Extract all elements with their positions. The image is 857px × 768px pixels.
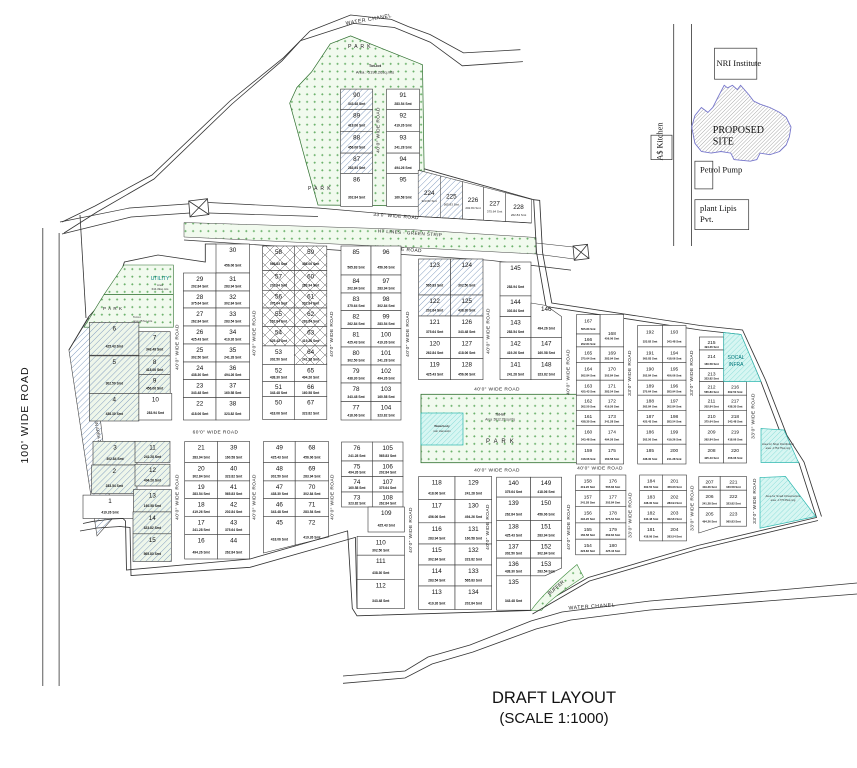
svg-text:438.30 Smt: 438.30 Smt [106,412,124,416]
svg-text:456.06 Smt: 456.06 Smt [428,515,446,519]
svg-text:112: 112 [376,582,387,589]
svg-text:PROPOSED: PROPOSED [713,125,764,136]
svg-text:283.94 Smt: 283.94 Smt [377,287,395,291]
svg-text:60'0" WIDE ROAD: 60'0" WIDE ROAD [193,430,239,436]
svg-text:83: 83 [352,296,360,303]
svg-text:4: 4 [112,396,116,403]
svg-text:181: 181 [647,527,655,533]
svg-text:222: 222 [729,494,737,500]
svg-text:27: 27 [196,311,204,318]
svg-text:121: 121 [429,319,440,326]
svg-text:52: 52 [275,367,283,374]
svg-text:200: 200 [670,448,678,454]
svg-text:40'0" WIDE ROAD: 40'0" WIDE ROAD [474,387,520,393]
svg-text:132: 132 [468,547,479,554]
svg-text:241.28 Smt: 241.28 Smt [302,358,320,362]
svg-text:419.26 Smt: 419.26 Smt [224,338,242,342]
svg-text:438.30 Smt: 438.30 Smt [728,405,743,409]
svg-text:375.64 Smt: 375.64 Smt [581,357,596,361]
svg-text:29: 29 [196,276,204,283]
svg-text:425.43 Smt: 425.43 Smt [378,524,396,528]
svg-text:15: 15 [149,537,157,544]
svg-text:302.84 Smt: 302.84 Smt [377,304,395,308]
svg-text:343.48 Smt: 343.48 Smt [146,348,164,352]
svg-text:418.06 Smt: 418.06 Smt [581,457,596,461]
svg-text:160.58 Smt: 160.58 Smt [580,533,595,537]
svg-text:22: 22 [196,401,204,408]
svg-text:302.84 Smt: 302.84 Smt [224,302,242,306]
svg-text:565.83 Smt: 565.83 Smt [426,283,444,287]
svg-text:302.50 Smt: 302.50 Smt [347,359,365,363]
svg-text:456.06 Smt: 456.06 Smt [537,512,555,516]
svg-text:375.64 Smt: 375.64 Smt [704,420,719,424]
svg-text:283.54 Smt: 283.54 Smt [428,579,446,583]
svg-text:33'0" WIDE ROAD: 33'0" WIDE ROAD [750,393,756,439]
svg-text:97: 97 [382,278,390,285]
svg-text:175: 175 [608,448,616,454]
svg-text:59: 59 [307,249,315,256]
svg-text:262.84 Smt: 262.84 Smt [511,213,527,217]
svg-text:302.84 Smt: 302.84 Smt [537,552,555,556]
svg-text:33'0" WIDE ROAD: 33'0" WIDE ROAD [627,350,633,396]
svg-text:P A R K: P A R K [103,306,123,311]
svg-text:182: 182 [647,511,655,517]
svg-text:99: 99 [382,314,390,321]
svg-text:134: 134 [468,589,479,596]
svg-text:2: 2 [113,468,117,475]
svg-text:202.84 Smt: 202.84 Smt [225,510,243,514]
svg-text:86: 86 [353,176,361,183]
svg-text:Waterbody: Waterbody [434,424,450,428]
svg-text:438.30 Smt: 438.30 Smt [347,377,365,381]
svg-text:131: 131 [468,526,479,533]
svg-text:302.84 Smt: 302.84 Smt [302,302,320,306]
svg-text:120: 120 [429,340,440,347]
svg-text:262.84 Smt: 262.84 Smt [505,512,523,516]
svg-text:174: 174 [608,429,616,435]
svg-text:418.06 Smt: 418.06 Smt [146,368,164,372]
svg-text:67: 67 [307,400,315,407]
svg-text:50: 50 [275,400,283,407]
svg-text:494.26 Smt: 494.26 Smt [702,520,717,524]
svg-text:202.84 Smt: 202.84 Smt [606,500,621,504]
svg-text:262.84 Smt: 262.84 Smt [704,437,719,441]
svg-text:302.50 Smt: 302.50 Smt [581,405,596,409]
svg-text:494.26 Smt: 494.26 Smt [394,166,412,170]
svg-text:456.06 Smt: 456.06 Smt [667,485,682,489]
svg-text:151: 151 [541,523,552,530]
svg-text:227: 227 [489,200,500,207]
svg-text:179: 179 [609,527,617,533]
svg-text:214: 214 [707,354,715,360]
svg-text:199: 199 [670,429,678,435]
svg-text:375.64 Smt: 375.64 Smt [487,209,503,213]
svg-text:456.06 Smt: 456.06 Smt [348,146,366,150]
svg-text:81: 81 [352,332,360,339]
svg-text:224: 224 [424,190,435,197]
svg-text:302.50 Smt: 302.50 Smt [728,390,743,394]
svg-text:201: 201 [670,479,678,485]
svg-text:419.26 Smt: 419.26 Smt [394,124,412,128]
svg-text:160.58 Smt: 160.58 Smt [348,486,366,490]
svg-text:65: 65 [307,367,315,374]
svg-text:115: 115 [432,547,443,554]
svg-text:241.28 Smt: 241.28 Smt [377,359,395,363]
svg-text:148: 148 [541,362,552,369]
svg-text:283.94 Smt: 283.94 Smt [605,357,620,361]
svg-text:202.84 Smt: 202.84 Smt [347,287,365,291]
svg-text:40'0" WIDE ROAD: 40'0" WIDE ROAD [565,349,571,395]
svg-text:565.83 Smt: 565.83 Smt [444,203,460,207]
svg-text:343.48 Smt: 343.48 Smt [644,517,659,521]
svg-text:283.54 Smt: 283.54 Smt [667,420,682,424]
svg-text:283.54 Smt: 283.54 Smt [377,322,395,326]
svg-text:241.28 Smt: 241.28 Smt [224,356,242,360]
svg-text:64: 64 [307,349,315,356]
svg-text:18: 18 [198,502,206,509]
svg-text:area :-1775.65sq.mtg: area :-1775.65sq.mtg [771,498,796,502]
svg-text:144: 144 [510,299,521,306]
svg-text:63: 63 [307,329,315,336]
svg-text:20: 20 [198,466,206,473]
svg-text:145: 145 [510,265,521,272]
svg-text:57: 57 [275,274,283,281]
svg-text:302.84 Smt: 302.84 Smt [106,457,124,461]
svg-text:262.84 Smt: 262.84 Smt [191,320,209,324]
svg-text:456.06 Smt: 456.06 Smt [667,374,682,378]
svg-text:146: 146 [541,306,552,313]
svg-text:343.48 Smt: 343.48 Smt [728,420,743,424]
svg-text:262.84 Smt: 262.84 Smt [347,322,365,326]
svg-text:102: 102 [381,368,392,375]
svg-text:143: 143 [510,320,521,327]
svg-text:202.84 Smt: 202.84 Smt [581,342,596,346]
svg-text:1: 1 [108,498,112,505]
svg-text:40'0" WIDE ROAD: 40'0" WIDE ROAD [486,308,492,354]
svg-text:80: 80 [352,350,360,357]
svg-text:74: 74 [353,479,361,486]
svg-text:183: 183 [647,495,655,501]
svg-text:323.82 Smt: 323.82 Smt [224,412,242,416]
svg-text:262.84 Smt: 262.84 Smt [426,351,444,355]
svg-text:40'0" WIDE ROAD: 40'0" WIDE ROAD [175,324,181,370]
svg-text:418.06 Smt: 418.06 Smt [348,124,366,128]
svg-text:61: 61 [307,293,315,300]
svg-text:3: 3 [113,444,117,451]
svg-text:159: 159 [584,448,592,454]
svg-text:302.50 Smt: 302.50 Smt [505,552,523,556]
svg-text:418.06 Smt: 418.06 Smt [191,412,209,416]
svg-text:A$ Kitchen: A$ Kitchen [656,123,665,161]
svg-text:124: 124 [462,262,473,269]
svg-text:156: 156 [584,510,592,516]
svg-text:283.94 Smt: 283.94 Smt [507,285,525,289]
svg-text:302.50 Smt: 302.50 Smt [643,437,658,441]
svg-text:NRI Institute: NRI Institute [717,58,762,68]
svg-text:89: 89 [353,112,361,119]
svg-text:6: 6 [112,325,116,332]
svg-text:56: 56 [275,293,283,300]
svg-text:45: 45 [276,519,284,526]
svg-text:138: 138 [508,523,519,530]
svg-text:14: 14 [149,515,157,522]
svg-text:283.94 Smt: 283.94 Smt [302,283,320,287]
svg-text:206: 206 [705,494,713,500]
svg-text:106: 106 [382,464,393,471]
svg-text:302.84 Smt: 302.84 Smt [605,374,620,378]
svg-text:Area :-5198.26sq.mts: Area :-5198.26sq.mts [356,70,394,75]
svg-text:122: 122 [429,298,440,305]
svg-text:12: 12 [149,467,157,474]
svg-text:91: 91 [399,92,407,99]
svg-text:90: 90 [353,92,361,99]
svg-text:283.54 Smt: 283.54 Smt [224,320,242,324]
svg-text:25: 25 [196,347,204,354]
svg-text:40'0" WIDE ROAD: 40'0" WIDE ROAD [175,474,181,520]
svg-text:SITE: SITE [713,137,734,148]
svg-text:283.54 Smt: 283.54 Smt [667,534,682,538]
svg-text:302.84 Smt: 302.84 Smt [192,474,210,478]
svg-text:118: 118 [432,480,443,487]
svg-text:343.48 Smt: 343.48 Smt [348,102,366,106]
svg-text:425.43 Smt: 425.43 Smt [581,390,596,394]
svg-text:228: 228 [513,204,524,211]
svg-text:223: 223 [729,512,737,518]
svg-text:262.84 Smt: 262.84 Smt [643,405,658,409]
svg-text:565.83 Smt: 565.83 Smt [606,485,621,489]
svg-text:456.06 Smt: 456.06 Smt [302,262,320,266]
svg-text:40'0" WIDE ROAD: 40'0" WIDE ROAD [405,311,411,357]
svg-text:565.83 Smt: 565.83 Smt [225,492,243,496]
svg-text:135: 135 [508,579,519,586]
svg-text:202.84 Smt: 202.84 Smt [426,309,444,313]
svg-text:Area for Small Infrastructure: Area for Small Infrastructure [766,494,801,498]
svg-text:203: 203 [670,511,678,517]
svg-text:area :-1754.75sq.mtg: area :-1754.75sq.mtg [766,446,791,450]
svg-text:23: 23 [196,383,204,390]
svg-text:565.83 Smt: 565.83 Smt [643,357,658,361]
svg-text:33: 33 [229,311,237,318]
svg-text:494.26 Smt: 494.26 Smt [224,373,242,377]
svg-text:283.94 Smt: 283.94 Smt [348,166,366,170]
svg-text:302.50 Smt: 302.50 Smt [271,474,289,478]
svg-text:126: 126 [462,319,473,326]
svg-text:302.84 Smt: 302.84 Smt [303,492,321,496]
svg-text:283.94 Smt: 283.94 Smt [537,533,555,537]
svg-text:142: 142 [510,340,521,347]
svg-text:644.49sq.mts: 644.49sq.mts [152,287,169,291]
svg-text:87: 87 [353,156,361,163]
svg-text:77: 77 [352,405,360,412]
svg-text:44: 44 [230,537,238,544]
svg-text:33'0" WIDE ROAD: 33'0" WIDE ROAD [628,492,634,538]
svg-text:103: 103 [381,386,392,393]
svg-text:205: 205 [705,512,713,518]
svg-text:302.50 Smt: 302.50 Smt [270,358,288,362]
svg-text:302.84 Smt: 302.84 Smt [348,196,366,200]
svg-text:190: 190 [646,366,654,372]
svg-text:195: 195 [670,366,678,372]
svg-text:Petrol Pump: Petrol Pump [700,165,742,175]
svg-text:241.28 Smt: 241.28 Smt [465,492,483,496]
svg-text:40'0" WIDE ROAD: 40'0" WIDE ROAD [330,474,336,520]
svg-text:323.82 Smt: 323.82 Smt [422,199,438,203]
svg-text:160.58 Smt: 160.58 Smt [605,457,620,461]
svg-text:92: 92 [399,112,407,119]
svg-text:40: 40 [230,466,238,473]
svg-text:39: 39 [230,445,238,452]
svg-text:241.28 Smt: 241.28 Smt [144,455,162,459]
svg-text:419.26 Smt: 419.26 Smt [302,339,320,343]
svg-text:565.83 Smt: 565.83 Smt [379,454,397,458]
svg-text:Area :6912.28sq.mtg: Area :6912.28sq.mtg [485,418,515,422]
svg-text:419.26 Smt: 419.26 Smt [428,601,446,605]
svg-text:343.48 Smt: 343.48 Smt [347,395,365,399]
svg-text:40'0" WIDE ROAD: 40'0" WIDE ROAD [329,311,335,357]
svg-text:34: 34 [229,329,237,336]
svg-text:9: 9 [153,378,157,385]
svg-text:375.64 Smt: 375.64 Smt [191,302,209,306]
svg-text:193: 193 [670,329,678,335]
svg-text:375.64 Smt: 375.64 Smt [225,528,243,532]
svg-text:191: 191 [646,351,654,357]
svg-text:70: 70 [308,484,316,491]
svg-text:419.26 Smt: 419.26 Smt [507,351,525,355]
svg-text:241.28 Smt: 241.28 Smt [667,457,682,461]
svg-text:283.54 Smt: 283.54 Smt [302,320,320,324]
svg-text:418.06 Smt: 418.06 Smt [728,437,743,441]
svg-text:127: 127 [462,340,473,347]
svg-text:139: 139 [508,500,519,507]
svg-text:116: 116 [432,526,443,533]
svg-text:49: 49 [276,445,284,452]
svg-text:283.94 Smt: 283.94 Smt [667,501,682,505]
svg-text:160: 160 [584,429,592,435]
svg-text:33'0" WIDE ROAD: 33'0" WIDE ROAD [752,478,758,524]
svg-text:283.94 Smt: 283.94 Smt [303,474,321,478]
svg-text:58: 58 [275,249,283,256]
svg-text:186: 186 [646,429,654,435]
svg-text:180: 180 [609,543,617,549]
svg-text:160.58 Smt: 160.58 Smt [704,362,719,366]
svg-text:43: 43 [230,519,238,526]
svg-text:100' WIDE ROAD: 100' WIDE ROAD [19,366,31,463]
svg-text:418.06 Smt: 418.06 Smt [537,490,555,494]
svg-text:323.82 Smt: 323.82 Smt [538,372,556,376]
svg-text:202.84 Smt: 202.84 Smt [191,285,209,289]
svg-text:128: 128 [462,362,473,369]
svg-text:208: 208 [707,448,715,454]
svg-text:60: 60 [307,274,315,281]
svg-text:419.26 Smt: 419.26 Smt [101,510,119,514]
svg-text:302.50 Smt: 302.50 Smt [644,485,659,489]
svg-text:494.26 Smt: 494.26 Smt [605,437,620,441]
svg-text:137: 137 [508,543,519,550]
svg-text:76: 76 [353,445,361,452]
svg-text:P A R K: P A R K [348,44,371,50]
svg-text:418.06 Smt: 418.06 Smt [270,412,288,416]
svg-text:209: 209 [707,429,715,435]
svg-text:425.43 Smt: 425.43 Smt [505,533,523,537]
svg-text:565.83 Smt: 565.83 Smt [581,327,596,331]
svg-text:100: 100 [381,332,392,339]
svg-text:96: 96 [382,249,390,256]
svg-text:107: 107 [382,479,393,486]
svg-text:323.82 Smt: 323.82 Smt [580,549,595,553]
svg-text:302.50 Smt: 302.50 Smt [458,283,476,287]
svg-text:438.30 Smt: 438.30 Smt [643,457,658,461]
svg-text:494.26 Smt: 494.26 Smt [538,326,556,330]
svg-text:283.54 Smt: 283.54 Smt [394,102,412,106]
svg-text:109: 109 [381,510,392,517]
svg-text:283.94 Smt: 283.94 Smt [224,285,242,289]
svg-text:323.82 Smt: 323.82 Smt [465,558,483,562]
svg-text:33'0" WIDE ROAD: 33'0" WIDE ROAD [689,485,695,531]
svg-text:204: 204 [670,527,678,533]
svg-text:160.58 Smt: 160.58 Smt [726,485,741,489]
svg-text:40'0" WIDE ROAD: 40'0" WIDE ROAD [408,507,414,553]
svg-text:456.06 Smt: 456.06 Smt [303,455,321,459]
svg-text:94: 94 [399,156,407,163]
svg-text:5: 5 [112,359,116,366]
svg-text:494.26 Smt: 494.26 Smt [377,377,395,381]
svg-text:149: 149 [541,480,552,487]
svg-text:98: 98 [382,296,390,303]
svg-text:375.64 Smt: 375.64 Smt [426,330,444,334]
svg-text:111: 111 [376,558,386,565]
svg-text:32: 32 [229,294,237,301]
svg-text:160.58 Smt: 160.58 Smt [465,537,483,541]
svg-text:494.26 Smt: 494.26 Smt [704,345,719,349]
svg-text:343.48 Smt: 343.48 Smt [458,330,476,334]
svg-text:438.30 Smt: 438.30 Smt [581,420,596,424]
svg-text:418.06 Smt: 418.06 Smt [271,538,289,542]
svg-text:343.48 Smt: 343.48 Smt [667,339,682,343]
svg-text:494.26 Smt: 494.26 Smt [348,471,366,475]
svg-text:SOCAL: SOCAL [728,355,745,361]
svg-text:177: 177 [609,494,617,500]
svg-text:438.30 Smt: 438.30 Smt [644,501,659,505]
svg-text:419.26 Smt: 419.26 Smt [192,510,210,514]
svg-text:UTILITY: UTILITY [151,276,170,282]
svg-text:40'0" WIDE ROAD: 40'0" WIDE ROAD [485,504,491,550]
svg-text:Area for Shop Distribution: Area for Shop Distribution [762,442,794,446]
svg-text:40'0" WIDE ROAD: 40'0" WIDE ROAD [252,474,258,520]
svg-text:226: 226 [468,197,479,204]
svg-text:262.84 Smt: 262.84 Smt [379,501,397,505]
svg-text:82: 82 [352,314,360,321]
svg-text:418.06 Smt: 418.06 Smt [667,357,682,361]
svg-text:419.26 Smt: 419.26 Smt [702,485,717,489]
svg-text:323.82 Smt: 323.82 Smt [643,339,658,343]
svg-text:456.06 Smt: 456.06 Smt [458,372,476,376]
svg-text:241.28 Smt: 241.28 Smt [348,454,366,458]
svg-text:425.43 Smt: 425.43 Smt [270,339,288,343]
svg-text:33'0" WIDE ROAD: 33'0" WIDE ROAD [689,350,695,396]
svg-text:41: 41 [230,484,238,491]
svg-text:302.50 Smt: 302.50 Smt [106,381,124,385]
svg-text:72: 72 [308,519,316,526]
svg-text:78: 78 [352,386,360,393]
svg-text:283.54 Smt: 283.54 Smt [106,484,124,488]
svg-text:53: 53 [275,349,283,356]
svg-text:418.06 Smt: 418.06 Smt [458,351,476,355]
svg-text:75: 75 [353,464,361,471]
svg-text:438.30 Smt: 438.30 Smt [271,492,289,496]
svg-text:425.43 Smt: 425.43 Smt [643,420,658,424]
svg-text:160.58 Smt: 160.58 Smt [538,351,556,355]
svg-text:419.26 Smt: 419.26 Smt [377,340,395,344]
